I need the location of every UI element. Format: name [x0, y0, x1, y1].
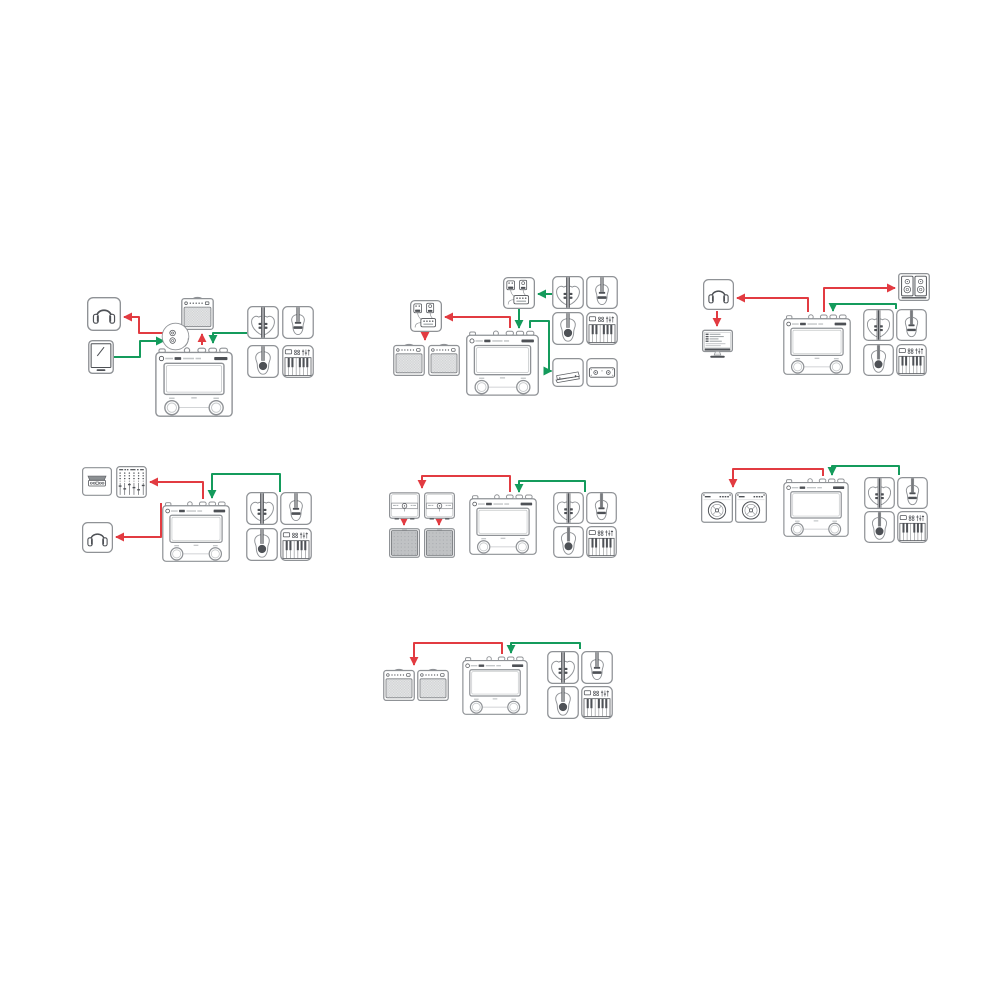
effects-processor-icon [470, 495, 536, 555]
effects-processor-icon [163, 502, 229, 562]
expression-pedal-icon [553, 359, 583, 387]
combo-amp-icon [736, 493, 767, 522]
classical-guitar-icon [281, 493, 311, 525]
acoustic-guitar-icon [554, 527, 584, 558]
headphones-icon [704, 280, 734, 310]
electric-guitar-icon [553, 277, 583, 309]
guitar-amp-icon [418, 669, 448, 700]
classical-guitar-icon [587, 493, 617, 524]
guitar-amp-icon [182, 297, 213, 329]
speaker-cabinet-icon [390, 529, 420, 558]
electric-guitar-icon [865, 478, 895, 509]
effects-processor-icon [463, 657, 527, 715]
acoustic-guitar-icon [247, 529, 277, 561]
effects-processor-icon [156, 348, 232, 416]
midi-keyboard-icon [281, 529, 311, 561]
classical-guitar-icon [283, 307, 313, 339]
audio-interface-icon [83, 468, 112, 496]
effects-processor-icon [784, 315, 850, 375]
studio-monitors-icon [899, 274, 930, 301]
effects-processor-icon [467, 331, 539, 395]
stompbox-chain-input-icon [504, 278, 535, 309]
electric-guitar-icon [248, 307, 278, 339]
electric-guitar-icon [864, 310, 894, 341]
midi-keyboard-icon [582, 687, 612, 719]
acoustic-guitar-icon [864, 345, 894, 376]
acoustic-guitar-icon [553, 313, 583, 345]
acoustic-guitar-icon [548, 687, 578, 719]
combo-amp-icon [702, 493, 733, 522]
midi-keyboard-icon [587, 313, 617, 345]
effects-processor-icon [784, 479, 848, 537]
stompbox-chain-output-icon [411, 301, 442, 332]
acoustic-guitar-icon [248, 346, 278, 378]
diagram-canvas [0, 0, 1000, 1000]
guitar-amp-icon [394, 344, 424, 375]
classical-guitar-icon [582, 652, 612, 684]
guitar-amp-icon [384, 669, 414, 700]
acoustic-guitar-icon [865, 512, 895, 543]
classical-guitar-icon [587, 277, 617, 309]
headphones-icon [83, 523, 113, 553]
power-amp-head-icon [425, 493, 455, 520]
power-amp-head-icon [390, 493, 420, 520]
midi-keyboard-icon [898, 512, 928, 543]
output-jacks-detail-icon [162, 323, 189, 350]
mixing-console-icon [117, 467, 147, 498]
headphones-icon [88, 298, 121, 331]
smartphone-icon [89, 341, 113, 374]
speaker-cabinet-icon [425, 529, 455, 558]
guitar-amp-icon [429, 344, 459, 375]
midi-keyboard-icon [897, 345, 927, 376]
classical-guitar-icon [897, 310, 927, 341]
electric-guitar-icon [554, 493, 584, 524]
classical-guitar-icon [898, 478, 928, 509]
midi-keyboard-icon [587, 527, 617, 558]
dual-footswitch-icon [587, 359, 617, 387]
midi-keyboard-icon [283, 346, 313, 378]
electric-guitar-icon [247, 493, 277, 525]
electric-guitar-icon [548, 652, 578, 684]
